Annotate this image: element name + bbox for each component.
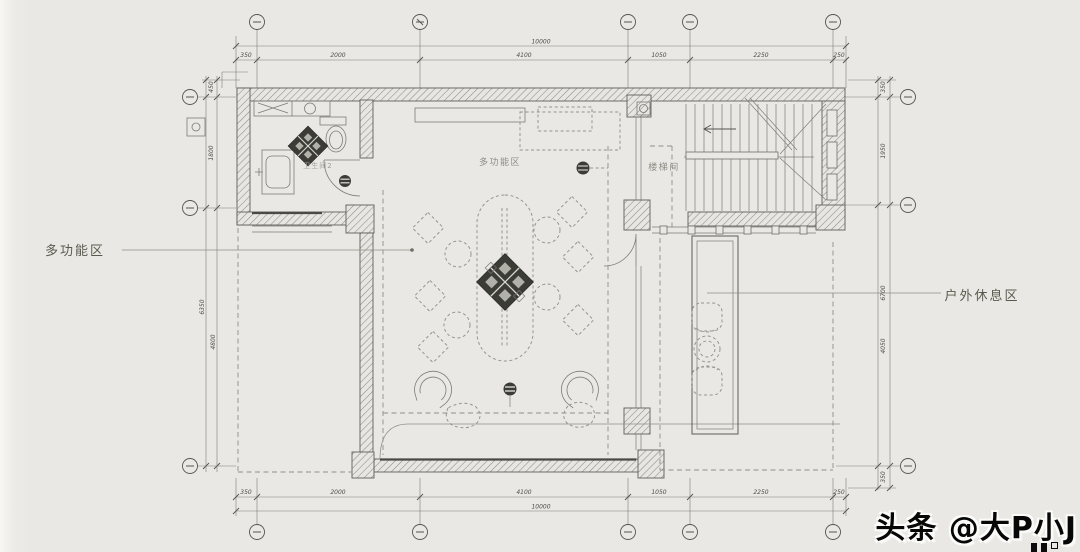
- dim-bottom-seg: 4100: [516, 489, 531, 496]
- stair-break-lines: [745, 98, 826, 200]
- dim-bottom-seg: 250: [833, 489, 845, 496]
- grid-bubble-row-top: [250, 15, 841, 30]
- wall-left: [237, 88, 250, 225]
- wall-top: [237, 88, 845, 101]
- stair-boundary-dashed: [650, 146, 672, 230]
- dim-bottom-seg: 350: [240, 489, 252, 496]
- wall-pier-mid: [624, 200, 650, 230]
- stairwell-label: 楼梯间: [648, 161, 680, 173]
- room-labels: 多功能区 楼梯间 卫生间2: [303, 156, 679, 173]
- logo-bar: [1041, 543, 1047, 552]
- dim-right-seg: 4050: [880, 338, 887, 353]
- logo-bar: [1031, 543, 1037, 552]
- basin-icon: [305, 103, 316, 114]
- logo-mark: [1051, 542, 1058, 549]
- floorplan-drawing: 10000 350 2000 4100 1050 2250 250 10000 …: [0, 0, 1080, 552]
- wall-bathroom-divider: [360, 100, 373, 158]
- wall-stair-bottom: [688, 212, 818, 226]
- socket-icons: [339, 162, 608, 188]
- deck-table: [694, 336, 720, 362]
- dim-bottom-seg: 2000: [330, 489, 345, 496]
- floorplan-canvas: 10000 350 2000 4100 1050 2250 250 10000 …: [0, 0, 1080, 552]
- sink-icon: [258, 103, 288, 113]
- toilet-bowl: [326, 126, 346, 152]
- dim-bottom-seg: 2250: [753, 489, 768, 496]
- dim-left-seg: 1800: [208, 145, 215, 160]
- wall-pier-mid: [624, 408, 650, 434]
- bottom-dimension-chain: 10000 350 2000 4100 1050 2250 250: [233, 478, 849, 524]
- floor-edge: [380, 424, 840, 459]
- callouts: 多功能区 户外休息区: [45, 243, 1020, 304]
- floor-ornament-center: [474, 251, 536, 313]
- dim-right-seg: 350: [880, 471, 887, 483]
- dim-top-seg: 250: [833, 52, 845, 59]
- dashed-cabinet: [520, 112, 620, 150]
- top-dimension-chain: 10000 350 2000 4100 1050 2250 250: [233, 30, 849, 88]
- wall-pier: [352, 452, 374, 478]
- left-callout-label: 多功能区: [45, 243, 105, 259]
- dim-top-seg: 2250: [753, 52, 768, 59]
- door-mid-wall: [604, 234, 636, 266]
- stair-rail: [686, 152, 778, 159]
- wall-pier: [816, 205, 845, 230]
- dim-top-seg: 1050: [651, 52, 666, 59]
- toilet-tank: [320, 117, 346, 125]
- bathroom-label: 卫生间2: [303, 161, 332, 170]
- dim-left-seg: 450: [208, 81, 215, 93]
- hall-label: 多功能区: [479, 156, 521, 168]
- dim-top-total: 10000: [531, 39, 550, 46]
- column-symbol: [187, 118, 205, 136]
- wall-pier-mid: [627, 95, 651, 117]
- window-slits-stair: [827, 110, 837, 200]
- dim-right-seg: 1950: [880, 143, 887, 158]
- wall-left-lower: [360, 233, 373, 459]
- top-counter: [415, 108, 525, 122]
- floor-lamp-icon: [504, 383, 517, 408]
- right-callout-label: 户外休息区: [944, 288, 1019, 304]
- corner-logo: [1031, 543, 1058, 552]
- exterior-sill: [252, 226, 332, 232]
- right-dimension-chain: 350 1950 6700 4050 350: [848, 76, 896, 491]
- dim-top-seg: 4100: [516, 52, 531, 59]
- grid-bubble-row-bottom: [250, 525, 841, 540]
- deck-railing: [692, 236, 738, 434]
- dim-bottom-total: 10000: [531, 504, 550, 511]
- area-boundary-dashed: [238, 146, 833, 472]
- deck-loungers: [692, 303, 722, 395]
- dashed-cabinet: [538, 107, 592, 131]
- outdoor-deck: [652, 226, 816, 434]
- dim-bottom-seg: 1050: [651, 489, 666, 496]
- dim-left-seg: 4800: [210, 334, 217, 349]
- wall-pier: [346, 205, 374, 233]
- dim-right-seg: 350: [880, 81, 887, 93]
- dim-left-seg: 6350: [199, 299, 206, 314]
- dim-top-seg: 2000: [330, 52, 345, 59]
- wall-bottom: [374, 459, 642, 472]
- watermark: 头条 @大P小J: [875, 514, 1077, 544]
- grid-bubble-col-right: [836, 90, 916, 474]
- window-mid-wall: [636, 117, 641, 450]
- dim-top-seg: 350: [240, 52, 252, 59]
- vanity: [262, 150, 294, 194]
